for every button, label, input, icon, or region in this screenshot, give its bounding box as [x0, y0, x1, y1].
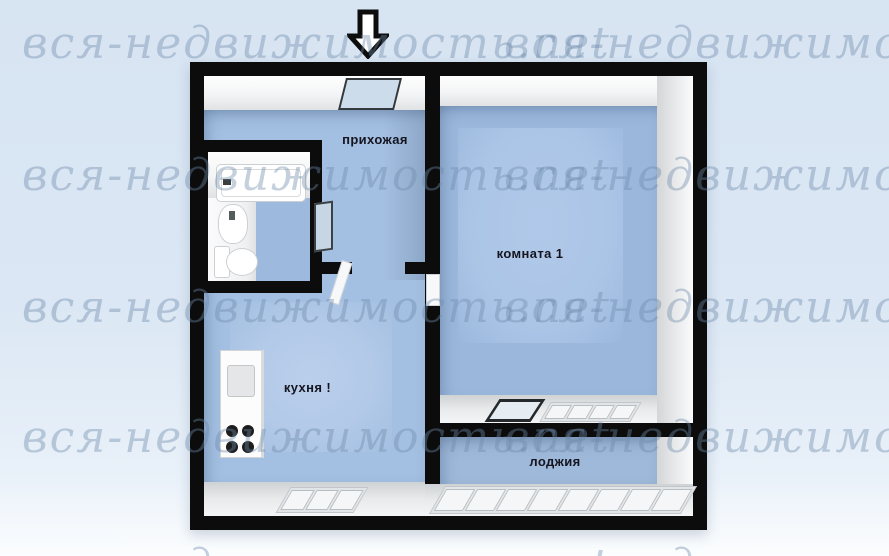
kitchen-window [275, 487, 368, 513]
loggia-window [429, 486, 697, 514]
room-top-wall-face [440, 76, 693, 106]
bathroom-sink-icon [218, 204, 248, 244]
bathroom [196, 140, 322, 293]
watermark-row: вся-недвижимость.netвся-недвижимость.net [22, 540, 889, 556]
middle-wall [425, 76, 440, 274]
room-right-wall-face [657, 76, 693, 423]
bathtub-rim [221, 169, 301, 197]
sink-tap [229, 211, 235, 220]
faucet-icon [223, 179, 231, 185]
watermark-text: вся-недвижимость.net [22, 540, 504, 556]
room-door [426, 274, 440, 306]
kitchen-unit [220, 350, 264, 458]
room-floor-highlight [458, 128, 623, 343]
room-loggia-wall [425, 423, 693, 437]
bathroom-door [314, 201, 333, 253]
watermark-text: вся-недвижимость.net [504, 540, 889, 556]
divider-wall-segment [405, 262, 425, 274]
bathroom-floor [208, 152, 310, 281]
floor-plan: прихожая кухня ! комната 1 лоджия [190, 62, 707, 530]
kitchen-label: кухня ! [250, 380, 365, 395]
entrance-arrow-icon [347, 9, 389, 59]
room-window [539, 402, 642, 422]
hallway-label: прихожая [320, 132, 430, 147]
loggia-label: лоджия [470, 454, 640, 469]
bathtub-icon [216, 164, 306, 202]
floor-plan-page: прихожая кухня ! комната 1 лоджия вся-н [0, 0, 889, 556]
stove-burners-icon [226, 425, 254, 453]
entrance-door [338, 78, 402, 110]
room-label: комната 1 [445, 246, 615, 261]
toilet-icon [226, 248, 258, 276]
